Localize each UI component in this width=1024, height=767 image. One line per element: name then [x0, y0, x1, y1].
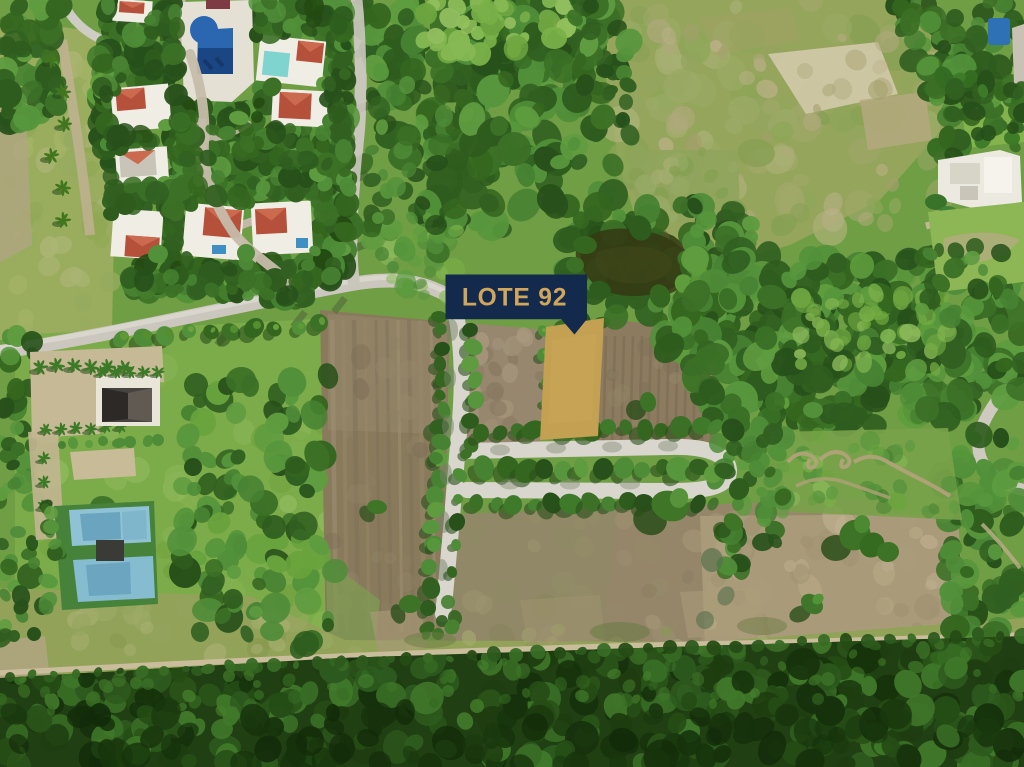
svg-text:LOTE 92: LOTE 92 [462, 285, 567, 312]
